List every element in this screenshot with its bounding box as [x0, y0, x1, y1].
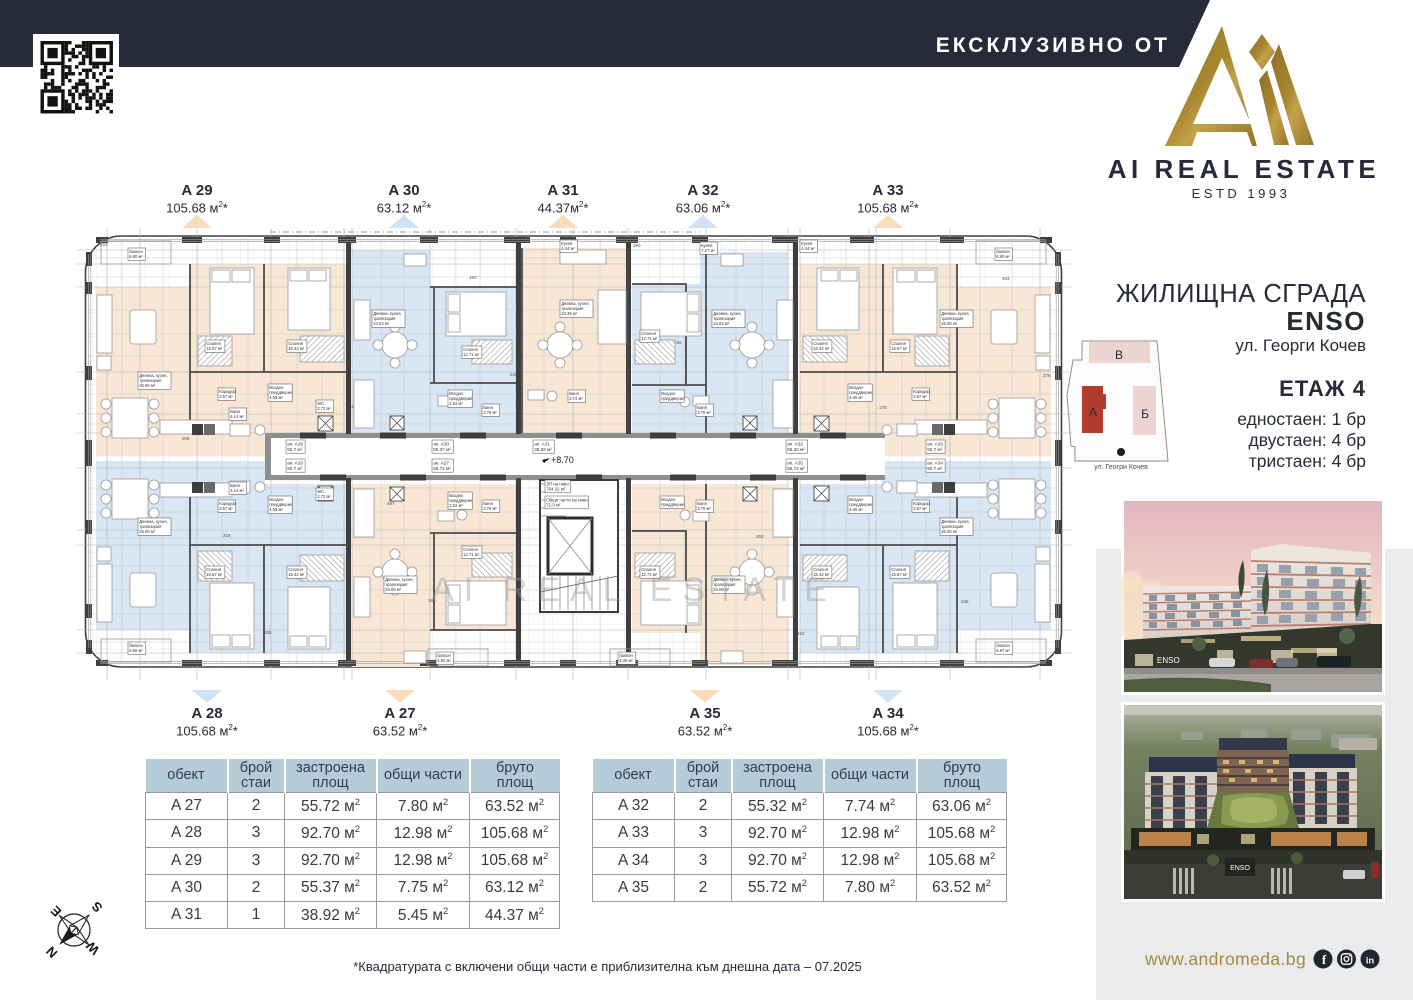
svg-text:92.7 м²: 92.7 м² — [927, 466, 942, 471]
svg-text:преддверие: преддверие — [661, 396, 685, 401]
svg-text:3.57 м²: 3.57 м² — [913, 394, 927, 399]
svg-text:2.72 м²: 2.72 м² — [317, 406, 331, 411]
svg-text:А: А — [1089, 405, 1097, 419]
svg-text:4.05 м²: 4.05 м² — [849, 507, 863, 512]
svg-text:AI REAL ESTATE: AI REAL ESTATE — [431, 571, 837, 609]
svg-text:3.76 м²: 3.76 м² — [697, 410, 711, 415]
svg-text:12.71 м²: 12.71 м² — [641, 336, 658, 341]
svg-text:in: in — [1366, 956, 1375, 967]
svg-text:26.00 м²: 26.00 м² — [941, 529, 958, 534]
svg-text:f: f — [1322, 952, 1327, 967]
svg-text:4.46 м²: 4.46 м² — [619, 658, 633, 663]
svg-text:ап. А29: ап. А29 — [287, 442, 303, 447]
svg-text:ап. А28: ап. А28 — [287, 461, 303, 466]
svg-text:390: 390 — [633, 243, 641, 248]
svg-text:15.67 м²: 15.67 м² — [891, 572, 908, 577]
svg-text:2.72 м²: 2.72 м² — [317, 494, 331, 499]
svg-text:3.57 м²: 3.57 м² — [913, 506, 927, 511]
svg-text:12.71 м²: 12.71 м² — [463, 352, 480, 357]
svg-text:12.71 м²: 12.71 м² — [463, 552, 480, 557]
svg-text:3.76 м²: 3.76 м² — [483, 410, 497, 415]
svg-text:ул. Геогри Кочев: ул. Геогри Кочев — [1094, 464, 1148, 471]
svg-text:7.27 м²: 7.27 м² — [701, 248, 715, 253]
svg-text:AI REAL ESTATE: AI REAL ESTATE — [1108, 154, 1380, 184]
svg-text:24.03 м²: 24.03 м² — [373, 321, 390, 326]
svg-text:378: 378 — [1043, 373, 1051, 378]
svg-text:92.7 м²: 92.7 м² — [287, 447, 302, 452]
svg-text:92.7 м²: 92.7 м² — [927, 447, 942, 452]
svg-text:Б: Б — [1141, 407, 1149, 421]
svg-text:55.32 м²: 55.32 м² — [787, 447, 805, 452]
svg-text:92.7 м²: 92.7 м² — [287, 466, 302, 471]
svg-text:15.67 м²: 15.67 м² — [206, 572, 223, 577]
svg-text:335: 335 — [264, 630, 272, 635]
svg-text:6.80 м²: 6.80 м² — [996, 254, 1010, 259]
svg-text:4.44 м²: 4.44 м² — [801, 246, 815, 251]
svg-text:ап. А32: ап. А32 — [787, 442, 803, 447]
svg-text:55.72 м²: 55.72 м² — [433, 466, 451, 471]
svg-text:2.52 м²: 2.52 м² — [449, 401, 463, 406]
svg-text:150: 150 — [469, 275, 477, 280]
svg-text:15.67 м²: 15.67 м² — [891, 346, 908, 351]
svg-text:ап. А31: ап. А31 — [534, 442, 550, 447]
svg-text:15.67 м²: 15.67 м² — [206, 346, 223, 351]
svg-text:+8.70: +8.70 — [551, 455, 574, 465]
svg-text:463: 463 — [1002, 276, 1010, 281]
svg-text:4.05 м²: 4.05 м² — [849, 395, 863, 400]
svg-text:ап. А35: ап. А35 — [787, 461, 803, 466]
svg-text:704.22 м²: 704.22 м² — [546, 487, 566, 492]
svg-text:318: 318 — [223, 533, 231, 538]
svg-text:В: В — [1115, 348, 1123, 362]
svg-text:4.14 м²: 4.14 м² — [230, 488, 244, 493]
svg-text:ап. А34: ап. А34 — [927, 461, 943, 466]
svg-text:15.42 м²: 15.42 м² — [813, 346, 830, 351]
svg-text:4.05 м²: 4.05 м² — [269, 507, 283, 512]
svg-text:3.57 м²: 3.57 м² — [219, 394, 233, 399]
svg-text:2.52 м²: 2.52 м² — [449, 503, 463, 508]
svg-text:26.00 м²: 26.00 м² — [139, 529, 156, 534]
svg-text:ESTD 1993: ESTD 1993 — [1192, 186, 1291, 201]
svg-text:N: N — [43, 944, 60, 961]
svg-text:ап. А27: ап. А27 — [433, 461, 449, 466]
svg-text:6.87 м²: 6.87 м² — [996, 648, 1010, 653]
svg-text:453: 453 — [756, 534, 764, 539]
svg-text:23.36 м²: 23.36 м² — [561, 311, 578, 316]
svg-text:4.44 м²: 4.44 м² — [561, 246, 575, 251]
svg-text:72.3 м²: 72.3 м² — [546, 503, 561, 508]
svg-text:346: 346 — [961, 599, 969, 604]
svg-text:24.03 м²: 24.03 м² — [713, 321, 730, 326]
svg-text:ап. А30: ап. А30 — [433, 442, 449, 447]
svg-text:6.80 м²: 6.80 м² — [129, 254, 143, 259]
svg-text:15.42 м²: 15.42 м² — [288, 346, 305, 351]
svg-text:322: 322 — [797, 631, 805, 636]
svg-text:26.00 м²: 26.00 м² — [941, 321, 958, 326]
svg-text:3.76 м²: 3.76 м² — [697, 506, 711, 511]
svg-text:4.14 м²: 4.14 м² — [230, 414, 244, 419]
svg-text:38.92 м²: 38.92 м² — [534, 447, 552, 452]
svg-text:55.37 м²: 55.37 м² — [433, 447, 451, 452]
svg-text:преддверие: преддверие — [661, 502, 685, 507]
svg-text:24.06 м²: 24.06 м² — [385, 587, 402, 592]
svg-text:26.00 м²: 26.00 м² — [139, 383, 156, 388]
svg-text:4.52 м²: 4.52 м² — [437, 658, 451, 663]
svg-text:3.76 м²: 3.76 м² — [483, 506, 497, 511]
svg-text:ап. А33: ап. А33 — [927, 442, 943, 447]
svg-text:ENSO: ENSO — [1157, 656, 1180, 665]
svg-text:4.05 м²: 4.05 м² — [269, 395, 283, 400]
svg-text:ENSO: ENSO — [1230, 865, 1250, 872]
svg-text:6.80 м²: 6.80 м² — [129, 648, 143, 653]
svg-text:S: S — [88, 898, 105, 915]
svg-text:306: 306 — [182, 436, 190, 441]
svg-text:15.42 м²: 15.42 м² — [288, 572, 305, 577]
svg-text:55.72 м²: 55.72 м² — [787, 466, 805, 471]
svg-text:3.74 м²: 3.74 м² — [569, 396, 583, 401]
svg-text:3.57 м²: 3.57 м² — [219, 506, 233, 511]
svg-text:175: 175 — [879, 405, 887, 410]
svg-text:497: 497 — [387, 501, 395, 506]
